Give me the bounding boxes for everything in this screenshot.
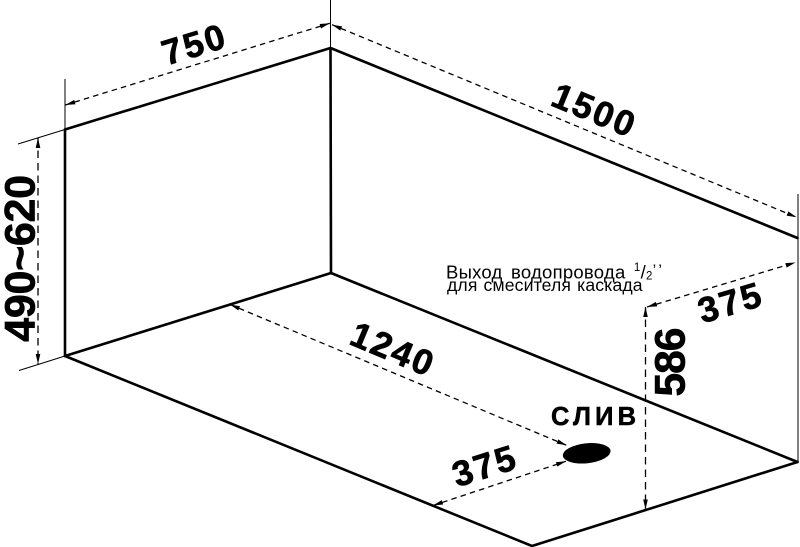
svg-text:375: 375 bbox=[693, 274, 768, 331]
svg-text:375: 375 bbox=[447, 437, 522, 495]
svg-text:СЛИВ: СЛИВ bbox=[551, 403, 640, 431]
svg-text:490~620: 490~620 bbox=[0, 175, 45, 342]
svg-text:1500: 1500 bbox=[546, 75, 643, 146]
svg-text:для смесителя каскада: для смесителя каскада bbox=[447, 275, 643, 295]
svg-text:750: 750 bbox=[157, 16, 232, 74]
svg-text:586: 586 bbox=[648, 328, 695, 396]
svg-text:1240: 1240 bbox=[345, 314, 442, 385]
